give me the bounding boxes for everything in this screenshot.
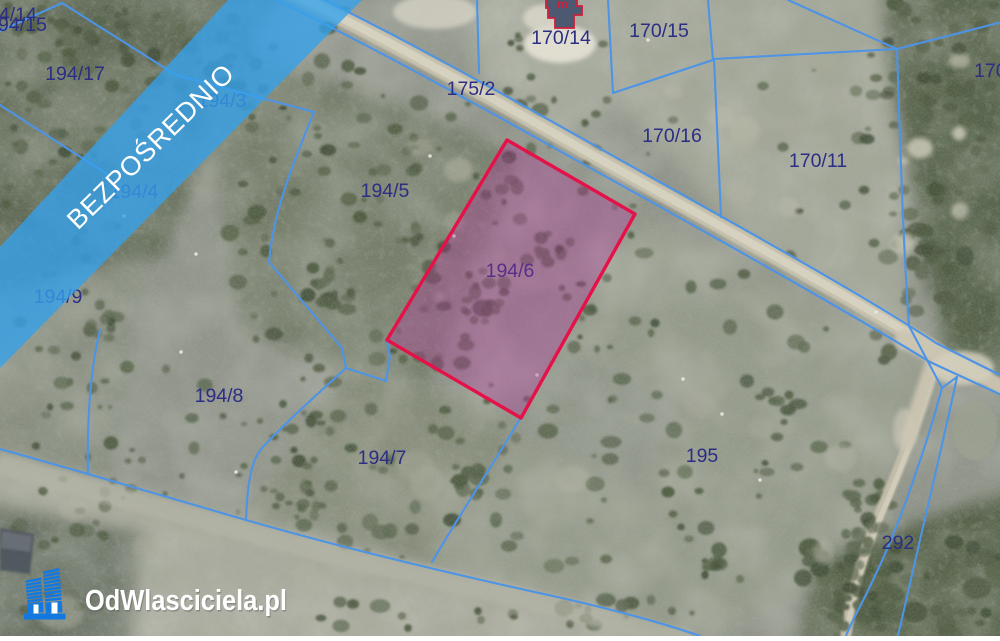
svg-text:170/10: 170/10 bbox=[974, 60, 1000, 82]
svg-text:194/17: 194/17 bbox=[45, 63, 105, 85]
svg-text:m: m bbox=[557, 0, 568, 11]
svg-text:OdWlasciciela.pl: OdWlasciciela.pl bbox=[85, 585, 287, 617]
svg-text:170/11: 170/11 bbox=[789, 150, 847, 172]
svg-text:170/15: 170/15 bbox=[629, 20, 689, 42]
svg-text:194/15: 194/15 bbox=[0, 14, 47, 36]
svg-text:194/5: 194/5 bbox=[361, 180, 410, 202]
svg-text:170/14: 170/14 bbox=[531, 27, 591, 49]
svg-text:292: 292 bbox=[882, 532, 915, 554]
svg-text:170/16: 170/16 bbox=[642, 125, 702, 147]
svg-text:194/8: 194/8 bbox=[195, 385, 244, 407]
svg-text:195: 195 bbox=[686, 445, 719, 467]
svg-text:175/2: 175/2 bbox=[447, 78, 496, 100]
svg-text:194/7: 194/7 bbox=[358, 447, 407, 469]
